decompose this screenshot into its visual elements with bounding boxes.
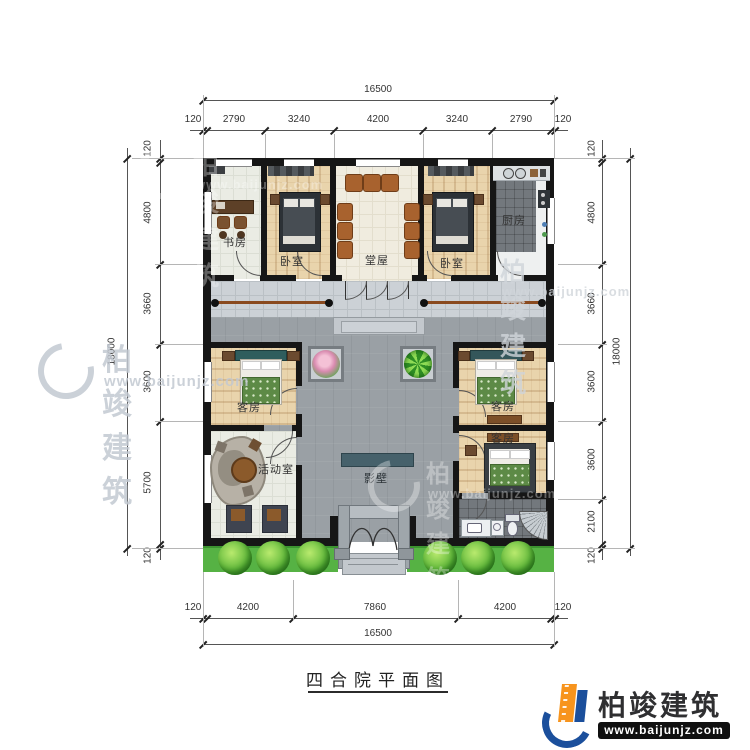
label-bedroom-right: 卧室 xyxy=(430,255,474,271)
guide xyxy=(203,572,204,647)
dim-right-total: 18000 xyxy=(612,332,623,372)
guide xyxy=(155,344,203,345)
stove-burner xyxy=(541,193,545,197)
activity-seat-cushion xyxy=(267,509,281,521)
wall-int xyxy=(453,342,459,388)
dim-top-4: 3240 xyxy=(437,114,477,125)
guide xyxy=(423,134,424,160)
dim-left-4: 5700 xyxy=(143,463,154,503)
wall-int xyxy=(203,425,264,431)
bush xyxy=(461,541,495,575)
nightstand xyxy=(465,445,477,456)
gate-step-line xyxy=(348,564,398,565)
dim-top-3: 4200 xyxy=(358,114,398,125)
guide xyxy=(558,264,607,265)
dim-right-3: 3600 xyxy=(587,362,598,402)
dim-line-bottom-seg xyxy=(190,618,568,619)
dim-right-0: 120 xyxy=(587,129,598,169)
railing-post xyxy=(538,299,546,307)
wardrobe xyxy=(268,166,314,176)
window xyxy=(356,159,400,167)
wall-int xyxy=(330,162,336,281)
label-guest-left: 客房 xyxy=(227,399,271,415)
label-guest-right-top: 客房 xyxy=(481,398,525,414)
activity-seat-cushion xyxy=(231,509,245,521)
bed-sheet xyxy=(436,236,468,244)
dim-left-2: 3660 xyxy=(143,284,154,324)
gate-corner-post xyxy=(398,548,414,560)
bathroom-sink-basin xyxy=(467,523,482,533)
hall-chair xyxy=(337,241,353,259)
stove-burner xyxy=(541,201,545,205)
dim-left-1: 4800 xyxy=(143,193,154,233)
guide xyxy=(554,572,555,647)
watermark-name: 柏竣建筑 xyxy=(500,252,530,400)
wall-int xyxy=(322,275,342,281)
dim-line-right-total xyxy=(630,148,631,556)
watermark-url: www.baijunjz.com xyxy=(104,373,249,390)
nightstand xyxy=(270,194,280,205)
watermark-url: www.baijunjz.com xyxy=(502,284,630,299)
dim-top-0: 120 xyxy=(173,114,213,125)
window xyxy=(547,362,555,402)
watermark-name: 柏竣建筑 xyxy=(102,335,136,511)
wall-int xyxy=(203,342,302,348)
dim-left-5: 120 xyxy=(143,536,154,576)
dim-bottom-2: 7860 xyxy=(355,602,395,613)
hall-chair xyxy=(337,222,353,240)
guide xyxy=(458,580,459,620)
logo-url-pill: www.baijunjz.com xyxy=(598,722,730,739)
wall-int xyxy=(296,342,302,386)
wardrobe xyxy=(428,166,474,176)
floor-plan-sheet: 16500 120 2790 3240 4200 3240 2790 120 1… xyxy=(0,0,750,750)
flower-plant xyxy=(312,350,340,378)
green-plant xyxy=(404,350,432,378)
dim-top-5: 2790 xyxy=(501,114,541,125)
wall-int xyxy=(418,162,424,281)
dim-line-top-total xyxy=(203,100,554,101)
guide xyxy=(558,421,607,422)
dim-right-4: 3600 xyxy=(587,440,598,480)
study-chair xyxy=(234,216,247,229)
dim-right-6: 120 xyxy=(587,536,598,576)
guide xyxy=(558,499,607,500)
watermark-logo-icon xyxy=(27,332,105,410)
nightstand xyxy=(458,351,470,361)
brand-logo: 柏竣建筑 www.baijunjz.com xyxy=(540,680,740,744)
dim-top-2: 3240 xyxy=(279,114,319,125)
label-activity: 活动室 xyxy=(254,461,298,477)
bush xyxy=(256,541,290,575)
dim-line-bottom-total xyxy=(203,644,554,645)
gate-corner-post xyxy=(334,548,350,560)
hall-chair xyxy=(345,174,363,192)
wall-int xyxy=(292,425,302,431)
guide xyxy=(155,421,203,422)
dresser xyxy=(487,415,522,424)
bed-pillow xyxy=(490,450,510,459)
dim-bottom-1: 4200 xyxy=(228,602,268,613)
toilet-bowl xyxy=(507,521,518,536)
railing-post xyxy=(211,299,219,307)
nightstand xyxy=(474,194,484,205)
watermark-name: 柏竣建筑 xyxy=(426,454,454,594)
kitchen-item xyxy=(530,169,538,177)
bed-pillow xyxy=(242,361,261,370)
bed-pillow xyxy=(437,199,451,207)
gate-step-line xyxy=(348,558,398,559)
title-underline xyxy=(308,691,448,693)
dim-bottom-0: 120 xyxy=(173,602,213,613)
watermark-logo-icon xyxy=(125,139,195,209)
guide xyxy=(334,134,335,160)
nightstand xyxy=(320,194,330,205)
guide xyxy=(492,134,493,160)
bush xyxy=(218,541,252,575)
veranda-railing-left xyxy=(215,301,328,304)
bush xyxy=(296,541,330,575)
dim-top-6: 120 xyxy=(543,114,583,125)
dim-bottom-3: 4200 xyxy=(485,602,525,613)
guide xyxy=(132,548,203,549)
kitchen-jar xyxy=(542,232,547,237)
label-hall: 堂屋 xyxy=(355,252,399,268)
dim-right-1: 4800 xyxy=(587,193,598,233)
nightstand xyxy=(222,351,235,361)
dim-bottom-total: 16500 xyxy=(358,628,398,639)
dim-top-total: 16500 xyxy=(358,84,398,95)
guide xyxy=(554,95,555,158)
kitchen-sink xyxy=(515,168,526,179)
dim-top-1: 2790 xyxy=(214,114,254,125)
bush xyxy=(501,541,535,575)
label-guest-right-mid: 客房 xyxy=(481,430,525,446)
wall-int xyxy=(260,275,296,281)
nightstand xyxy=(423,194,433,205)
bed-pillow xyxy=(453,199,467,207)
dim-line-top-seg xyxy=(190,130,568,131)
hall-steps-inner xyxy=(341,321,417,333)
kitchen-sink xyxy=(503,168,514,179)
drawing-title: 四合院平面图 xyxy=(278,666,478,691)
railing-post xyxy=(325,299,333,307)
window xyxy=(547,442,555,480)
nightstand xyxy=(287,351,300,361)
hall-chair xyxy=(404,222,420,240)
guide xyxy=(554,158,635,159)
hall-chair xyxy=(337,203,353,221)
bed-pillow xyxy=(477,361,496,370)
hall-chair xyxy=(363,174,381,192)
wall-int xyxy=(451,275,498,281)
hall-chair xyxy=(381,174,399,192)
bed-pillow xyxy=(300,199,314,207)
guide xyxy=(554,548,635,549)
bed-quilt xyxy=(490,464,530,486)
washer-door xyxy=(493,523,501,531)
dim-line-left-seg xyxy=(160,140,161,560)
wall-int xyxy=(412,275,427,281)
kitchen-jar xyxy=(542,222,547,227)
wall-int xyxy=(296,465,302,546)
gate-double-door xyxy=(346,516,400,552)
bed-pillow xyxy=(284,199,298,207)
hall-chair xyxy=(404,241,420,259)
guide xyxy=(265,134,266,160)
watermark-url: www.baijunjz.com xyxy=(195,177,323,192)
dim-bottom-4: 120 xyxy=(543,602,583,613)
guide xyxy=(293,580,294,620)
bed-pillow xyxy=(510,450,530,459)
logo-name: 柏竣建筑 xyxy=(598,684,722,724)
watermark-name: 柏竣建筑 xyxy=(193,145,223,293)
watermark-url: www.baijunjz.com xyxy=(428,486,556,501)
railing-post xyxy=(420,299,428,307)
label-kitchen: 厨房 xyxy=(492,212,536,228)
guide xyxy=(558,344,607,345)
bed-sheet xyxy=(283,236,315,244)
label-bedroom-left: 卧室 xyxy=(270,253,314,269)
hall-chair xyxy=(404,203,420,221)
bed-pillow xyxy=(261,361,280,370)
kitchen-item xyxy=(540,169,546,177)
